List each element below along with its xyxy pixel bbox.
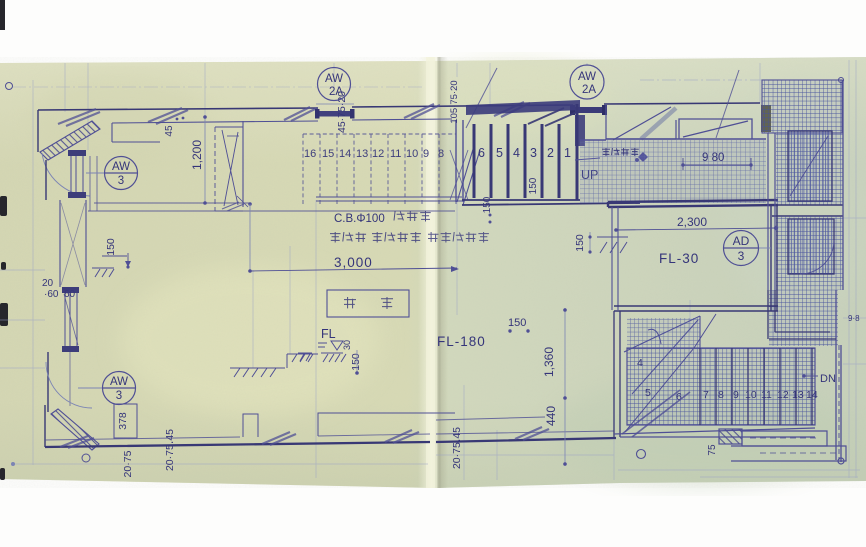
svg-text:1,360: 1,360 [542,347,556,377]
svg-text:378: 378 [117,412,129,430]
svg-text:C.B.Φ100: C.B.Φ100 [334,213,385,225]
svg-text:20·75․45: 20·75․45 [164,429,176,471]
svg-text:30: 30 [342,340,352,350]
svg-text:AD: AD [733,234,750,248]
svg-text:7: 7 [703,389,709,401]
svg-text:11: 11 [390,148,401,160]
svg-text:3: 3 [738,249,745,263]
svg-text:20·75․45: 20·75․45 [451,427,463,469]
svg-text:6: 6 [478,146,485,160]
svg-text:2: 2 [547,146,554,160]
svg-text:9: 9 [733,389,739,401]
svg-text:FL-30: FL-30 [659,251,699,266]
svg-text:12: 12 [372,148,384,160]
svg-text:105·75·20: 105·75·20 [449,80,460,123]
svg-text:10: 10 [745,389,757,401]
svg-text:150: 150 [574,234,586,252]
svg-text:440: 440 [544,406,558,426]
svg-text:2A: 2A [329,86,343,98]
svg-text:20·75: 20·75 [122,450,134,477]
svg-text:8: 8 [718,389,724,401]
svg-text:12: 12 [777,389,789,401]
svg-text:13: 13 [356,148,368,160]
svg-text:·60: ·60 [44,289,59,300]
svg-text:AW: AW [578,71,596,83]
svg-text:AW: AW [112,161,130,173]
svg-text:5: 5 [496,146,503,160]
svg-text:45: 45 [164,125,175,137]
svg-text:60: 60 [64,289,76,300]
svg-text:16: 16 [304,148,316,160]
svg-text:150: 150 [105,238,117,256]
svg-text:FL: FL [321,327,336,341]
svg-text:3: 3 [118,175,124,187]
svg-text:2A: 2A [582,84,596,96]
svg-text:13: 13 [792,389,804,401]
svg-text:DN: DN [820,373,836,385]
svg-text:AW: AW [110,376,128,388]
svg-text:150: 150 [508,317,526,329]
svg-text:150: 150 [350,353,362,371]
svg-text:20: 20 [42,278,54,289]
svg-text:1,200: 1,200 [190,140,204,170]
svg-text:9·8: 9·8 [848,314,860,323]
svg-text:FL-180: FL-180 [437,334,486,349]
svg-text:9 80: 9 80 [702,152,724,164]
svg-text:150: 150 [482,196,493,213]
svg-text:8: 8 [438,148,444,160]
svg-text:14: 14 [339,148,351,160]
svg-text:3,000: 3,000 [334,255,373,270]
svg-text:15: 15 [322,148,334,160]
svg-text:1: 1 [564,146,571,160]
svg-text:10: 10 [406,148,418,160]
svg-text:150: 150 [528,177,539,194]
svg-text:14: 14 [806,389,818,401]
svg-text:AW: AW [325,73,343,85]
svg-text:2,300: 2,300 [677,215,707,229]
svg-text:11: 11 [761,389,772,401]
svg-text:9: 9 [423,148,429,160]
svg-text:5: 5 [645,387,651,399]
svg-text:3: 3 [530,146,537,160]
svg-text:4: 4 [637,357,643,369]
svg-text:4: 4 [513,146,520,160]
svg-text:3: 3 [116,390,122,402]
svg-text:75: 75 [707,444,718,456]
